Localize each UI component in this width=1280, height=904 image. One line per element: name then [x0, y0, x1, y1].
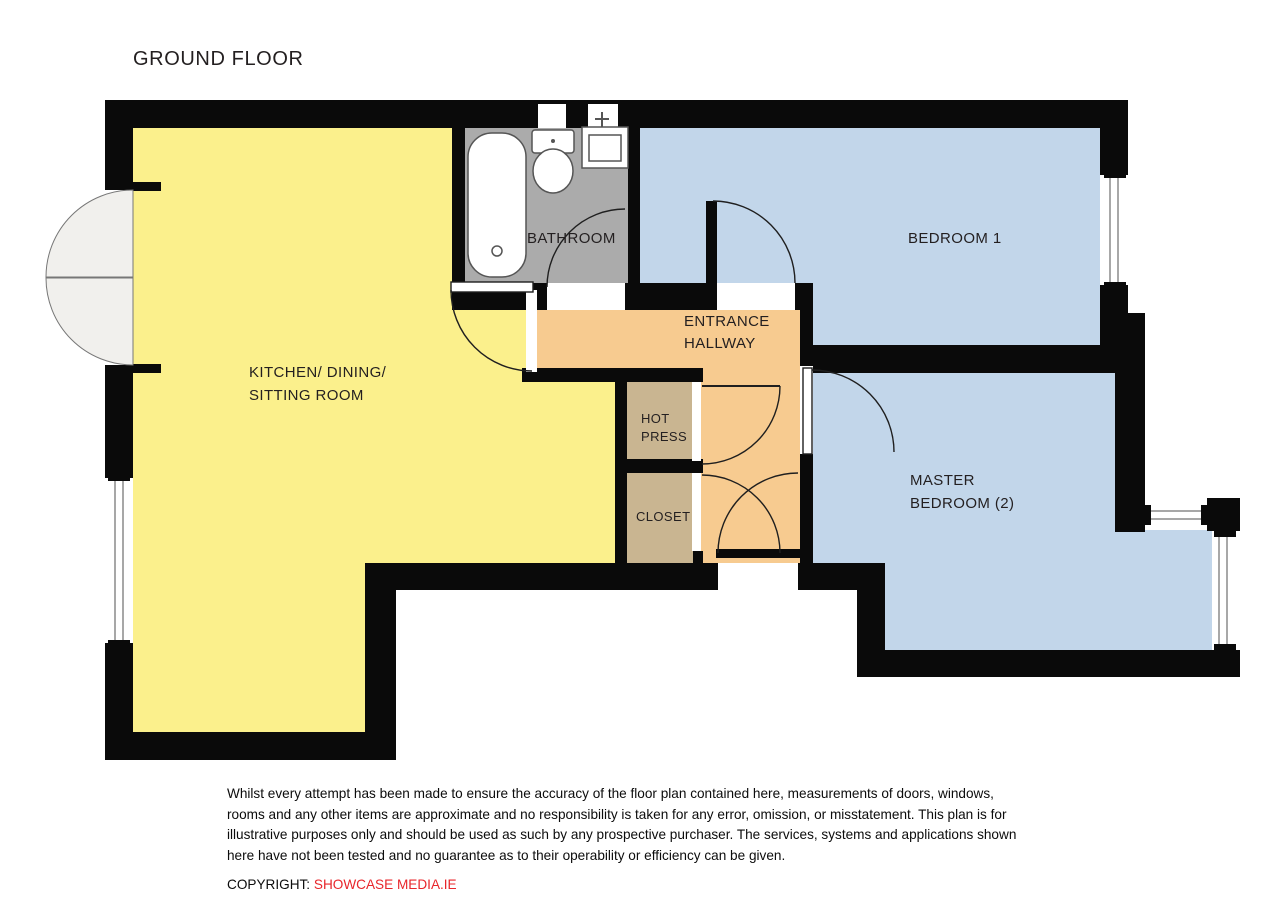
floor-plan-svg: BATHROOM BEDROOM 1 ENTRANCE HALLWAY KITC…: [0, 0, 1280, 904]
wall-front-door-leaf: [716, 549, 800, 558]
opening-kitchen-door: [526, 290, 537, 372]
opening-left-window: [105, 478, 133, 643]
disclaimer-text: Whilst every attempt has been made to en…: [227, 784, 1016, 866]
wall-kitchen-step-horizontal: [365, 563, 718, 590]
french-doors: [46, 190, 133, 365]
bathroom-label: BATHROOM: [527, 230, 616, 247]
opening-bay-window-right: [1212, 531, 1240, 650]
wall-kitchen-hallway-top: [522, 368, 627, 382]
opening-bay-window-top: [1145, 500, 1207, 530]
wall-closet-divider: [615, 459, 703, 473]
wall-bedroom1-door-leaf: [706, 201, 717, 285]
bathtub-icon: [468, 133, 526, 277]
master-bedroom-label-line1: MASTER: [910, 472, 975, 489]
opening-toilet-notch: [538, 104, 566, 128]
opening-front-door: [718, 563, 798, 590]
wall-closet-stub-bottom: [693, 551, 703, 565]
wall-bedroom1-right-lower: [1100, 285, 1128, 313]
hot-press-label-line1: HOT: [641, 411, 670, 426]
wall-bay-corner: [1207, 498, 1240, 531]
kitchen-door-leaf: [451, 282, 533, 292]
copyright-line: COPYRIGHT: SHOWCASE MEDIA.IE: [227, 877, 457, 892]
opening-hotpress-door: [692, 382, 701, 461]
disclaimer-line-4: here have not been tested and no guarant…: [227, 846, 1016, 867]
wall-bottom-kitchen: [105, 732, 396, 760]
wall-bathroom-bedroom-divider: [628, 128, 640, 310]
disclaimer-line-2: rooms and any other items are approximat…: [227, 805, 1016, 826]
wall-left-upper: [105, 128, 133, 190]
master-bedroom-label-line2: BEDROOM (2): [910, 495, 1014, 512]
wall-master-right: [1115, 373, 1145, 532]
closet-label: CLOSET: [636, 509, 690, 524]
bedroom1-label: BEDROOM 1: [908, 230, 1002, 247]
kitchen-label-line2: SITTING ROOM: [249, 387, 364, 404]
hot-press-label-line2: PRESS: [641, 429, 687, 444]
hallway-label-line1: ENTRANCE: [684, 313, 770, 330]
kitchen-label-line1: KITCHEN/ DINING/: [249, 364, 387, 381]
copyright-label: COPYRIGHT:: [227, 877, 310, 892]
hallway-label-line2: HALLWAY: [684, 335, 756, 352]
wall-frontdoor-stub: [798, 563, 860, 590]
wall-bedroom1-right-upper: [1100, 128, 1128, 175]
floor-plan-page: GROUND FLOOR: [0, 0, 1280, 904]
disclaimer-line-1: Whilst every attempt has been made to en…: [227, 784, 1016, 805]
wall-master-bottom: [857, 650, 1240, 677]
wall-kitchen-step-vertical: [365, 563, 396, 760]
toilet-icon: [532, 130, 574, 193]
opening-bedroom1-door: [717, 283, 795, 310]
opening-bathroom-door: [547, 283, 625, 310]
disclaimer-line-3: illustrative purposes only and should be…: [227, 825, 1016, 846]
wall-left-mid: [105, 365, 133, 478]
opening-bedroom1-window: [1100, 175, 1128, 285]
wall-closet-top: [615, 368, 703, 382]
wall-bedroom-divider: [805, 345, 1145, 373]
french-door-leaf-top: [46, 190, 133, 277]
opening-closet-door: [692, 473, 701, 551]
french-door-leaf-bottom: [46, 278, 133, 365]
copyright-brand: SHOWCASE MEDIA.IE: [314, 877, 457, 892]
master-door-leaf: [803, 368, 812, 454]
